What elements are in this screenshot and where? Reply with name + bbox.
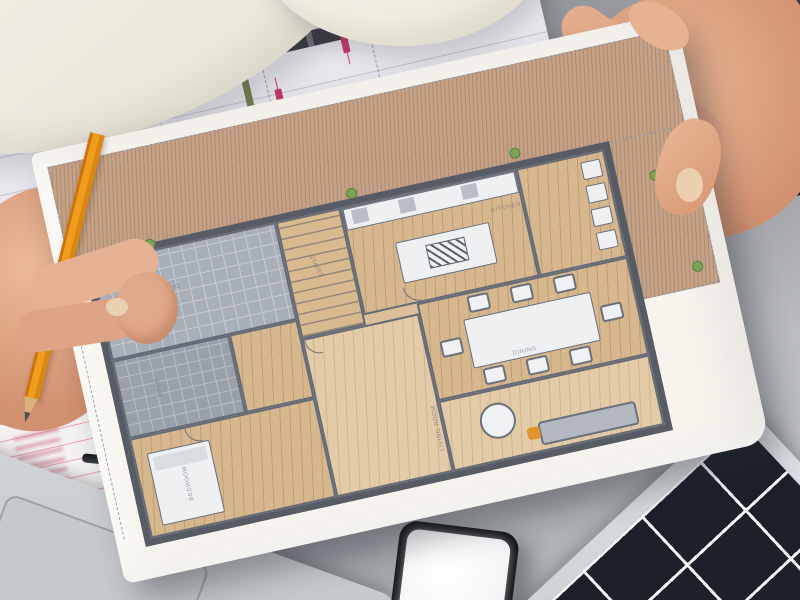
smartphone-screen [394,528,511,600]
chair [568,345,593,366]
shelf [590,205,613,227]
orange-cushion [526,426,541,441]
left-finger-nail [106,298,128,316]
island-hob [425,237,469,269]
desk-scene: STUDIO BATH STAIRS KITCHEN DINING LIVING… [0,0,800,600]
sofa [537,401,640,446]
chair [466,292,491,313]
pillow [153,446,209,471]
shelf [596,229,619,251]
chair [439,337,464,358]
right-thumb-nail [676,168,703,202]
shelf [585,182,608,204]
shelf [580,159,603,181]
round-table [476,399,519,442]
smartphone [386,519,521,600]
chair [482,364,507,385]
chair [509,282,534,303]
chair [525,355,550,376]
chair [552,273,577,294]
kitchen-island [395,222,498,284]
chair [599,301,624,322]
